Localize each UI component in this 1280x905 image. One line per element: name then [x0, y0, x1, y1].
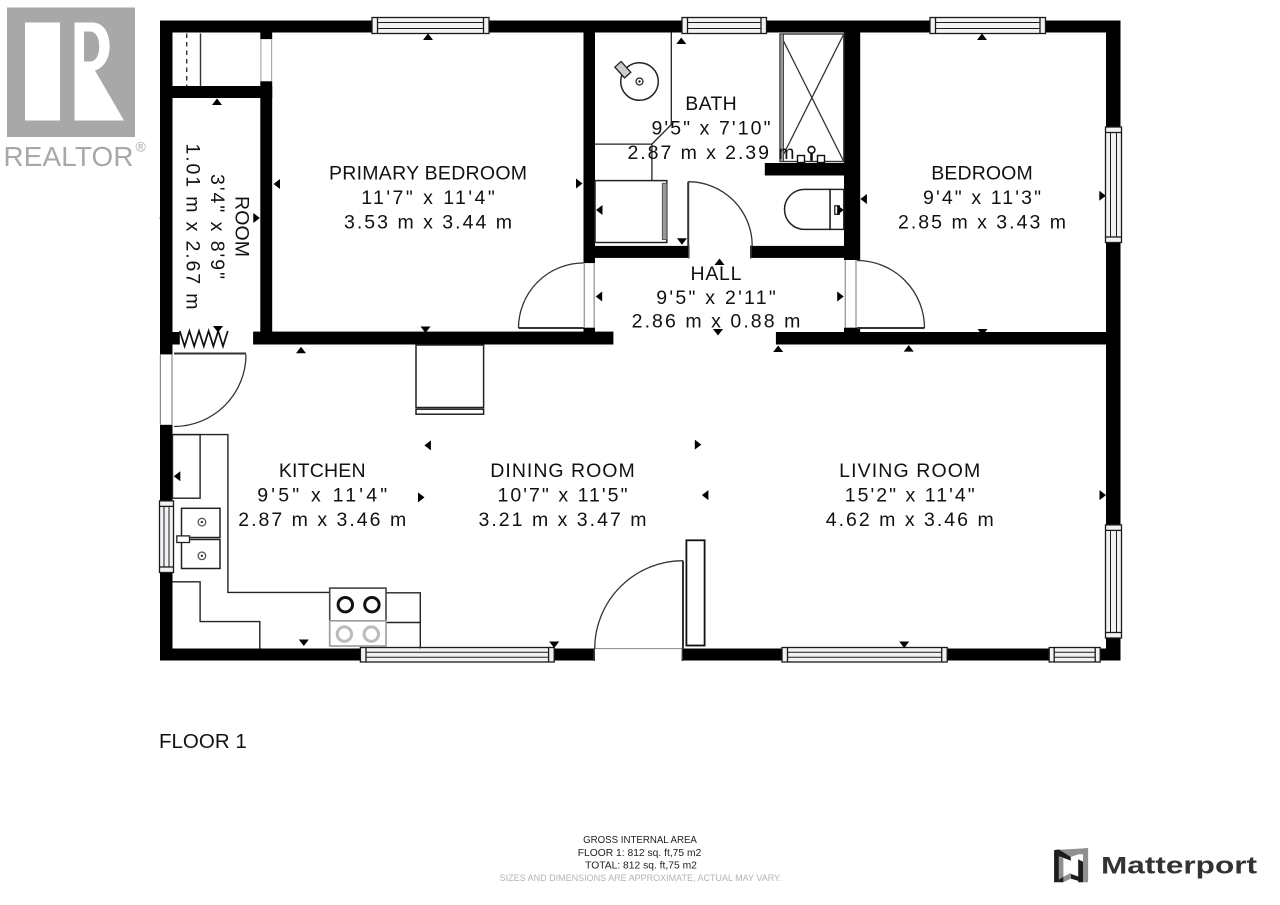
svg-text:11'7" x 11'4": 11'7" x 11'4": [361, 187, 495, 209]
svg-text:PRIMARY BEDROOM: PRIMARY BEDROOM: [329, 162, 527, 184]
svg-text:BEDROOM: BEDROOM: [931, 162, 1032, 184]
svg-text:ROOM: ROOM: [230, 196, 252, 257]
svg-text:3'4" x 8'9": 3'4" x 8'9": [206, 174, 228, 279]
svg-text:15'2" x 11'4": 15'2" x 11'4": [845, 484, 975, 506]
svg-text:®: ®: [136, 139, 147, 155]
svg-text:KITCHEN: KITCHEN: [279, 460, 366, 482]
svg-text:Matterport: Matterport: [1101, 852, 1257, 879]
svg-text:DINING ROOM: DINING ROOM: [490, 460, 634, 482]
svg-text:TOTAL: 812 sq. ft,75 m2: TOTAL: 812 sq. ft,75 m2: [585, 860, 697, 871]
svg-text:FLOOR 1: FLOOR 1: [159, 730, 247, 753]
svg-text:LIVING ROOM: LIVING ROOM: [839, 460, 980, 482]
svg-text:10'7" x 11'5": 10'7" x 11'5": [498, 484, 628, 506]
svg-text:FLOOR 1: 812 sq. ft,75 m2: FLOOR 1: 812 sq. ft,75 m2: [578, 848, 702, 859]
svg-text:REALTOR: REALTOR: [4, 141, 134, 172]
svg-text:HALL: HALL: [691, 263, 742, 285]
svg-text:BATH: BATH: [685, 93, 737, 115]
svg-text:9'5" x 7'10": 9'5" x 7'10": [652, 118, 771, 140]
svg-text:SIZES AND DIMENSIONS ARE APPRO: SIZES AND DIMENSIONS ARE APPROXIMATE, AC…: [500, 873, 782, 883]
svg-text:GROSS INTERNAL AREA: GROSS INTERNAL AREA: [583, 835, 697, 846]
